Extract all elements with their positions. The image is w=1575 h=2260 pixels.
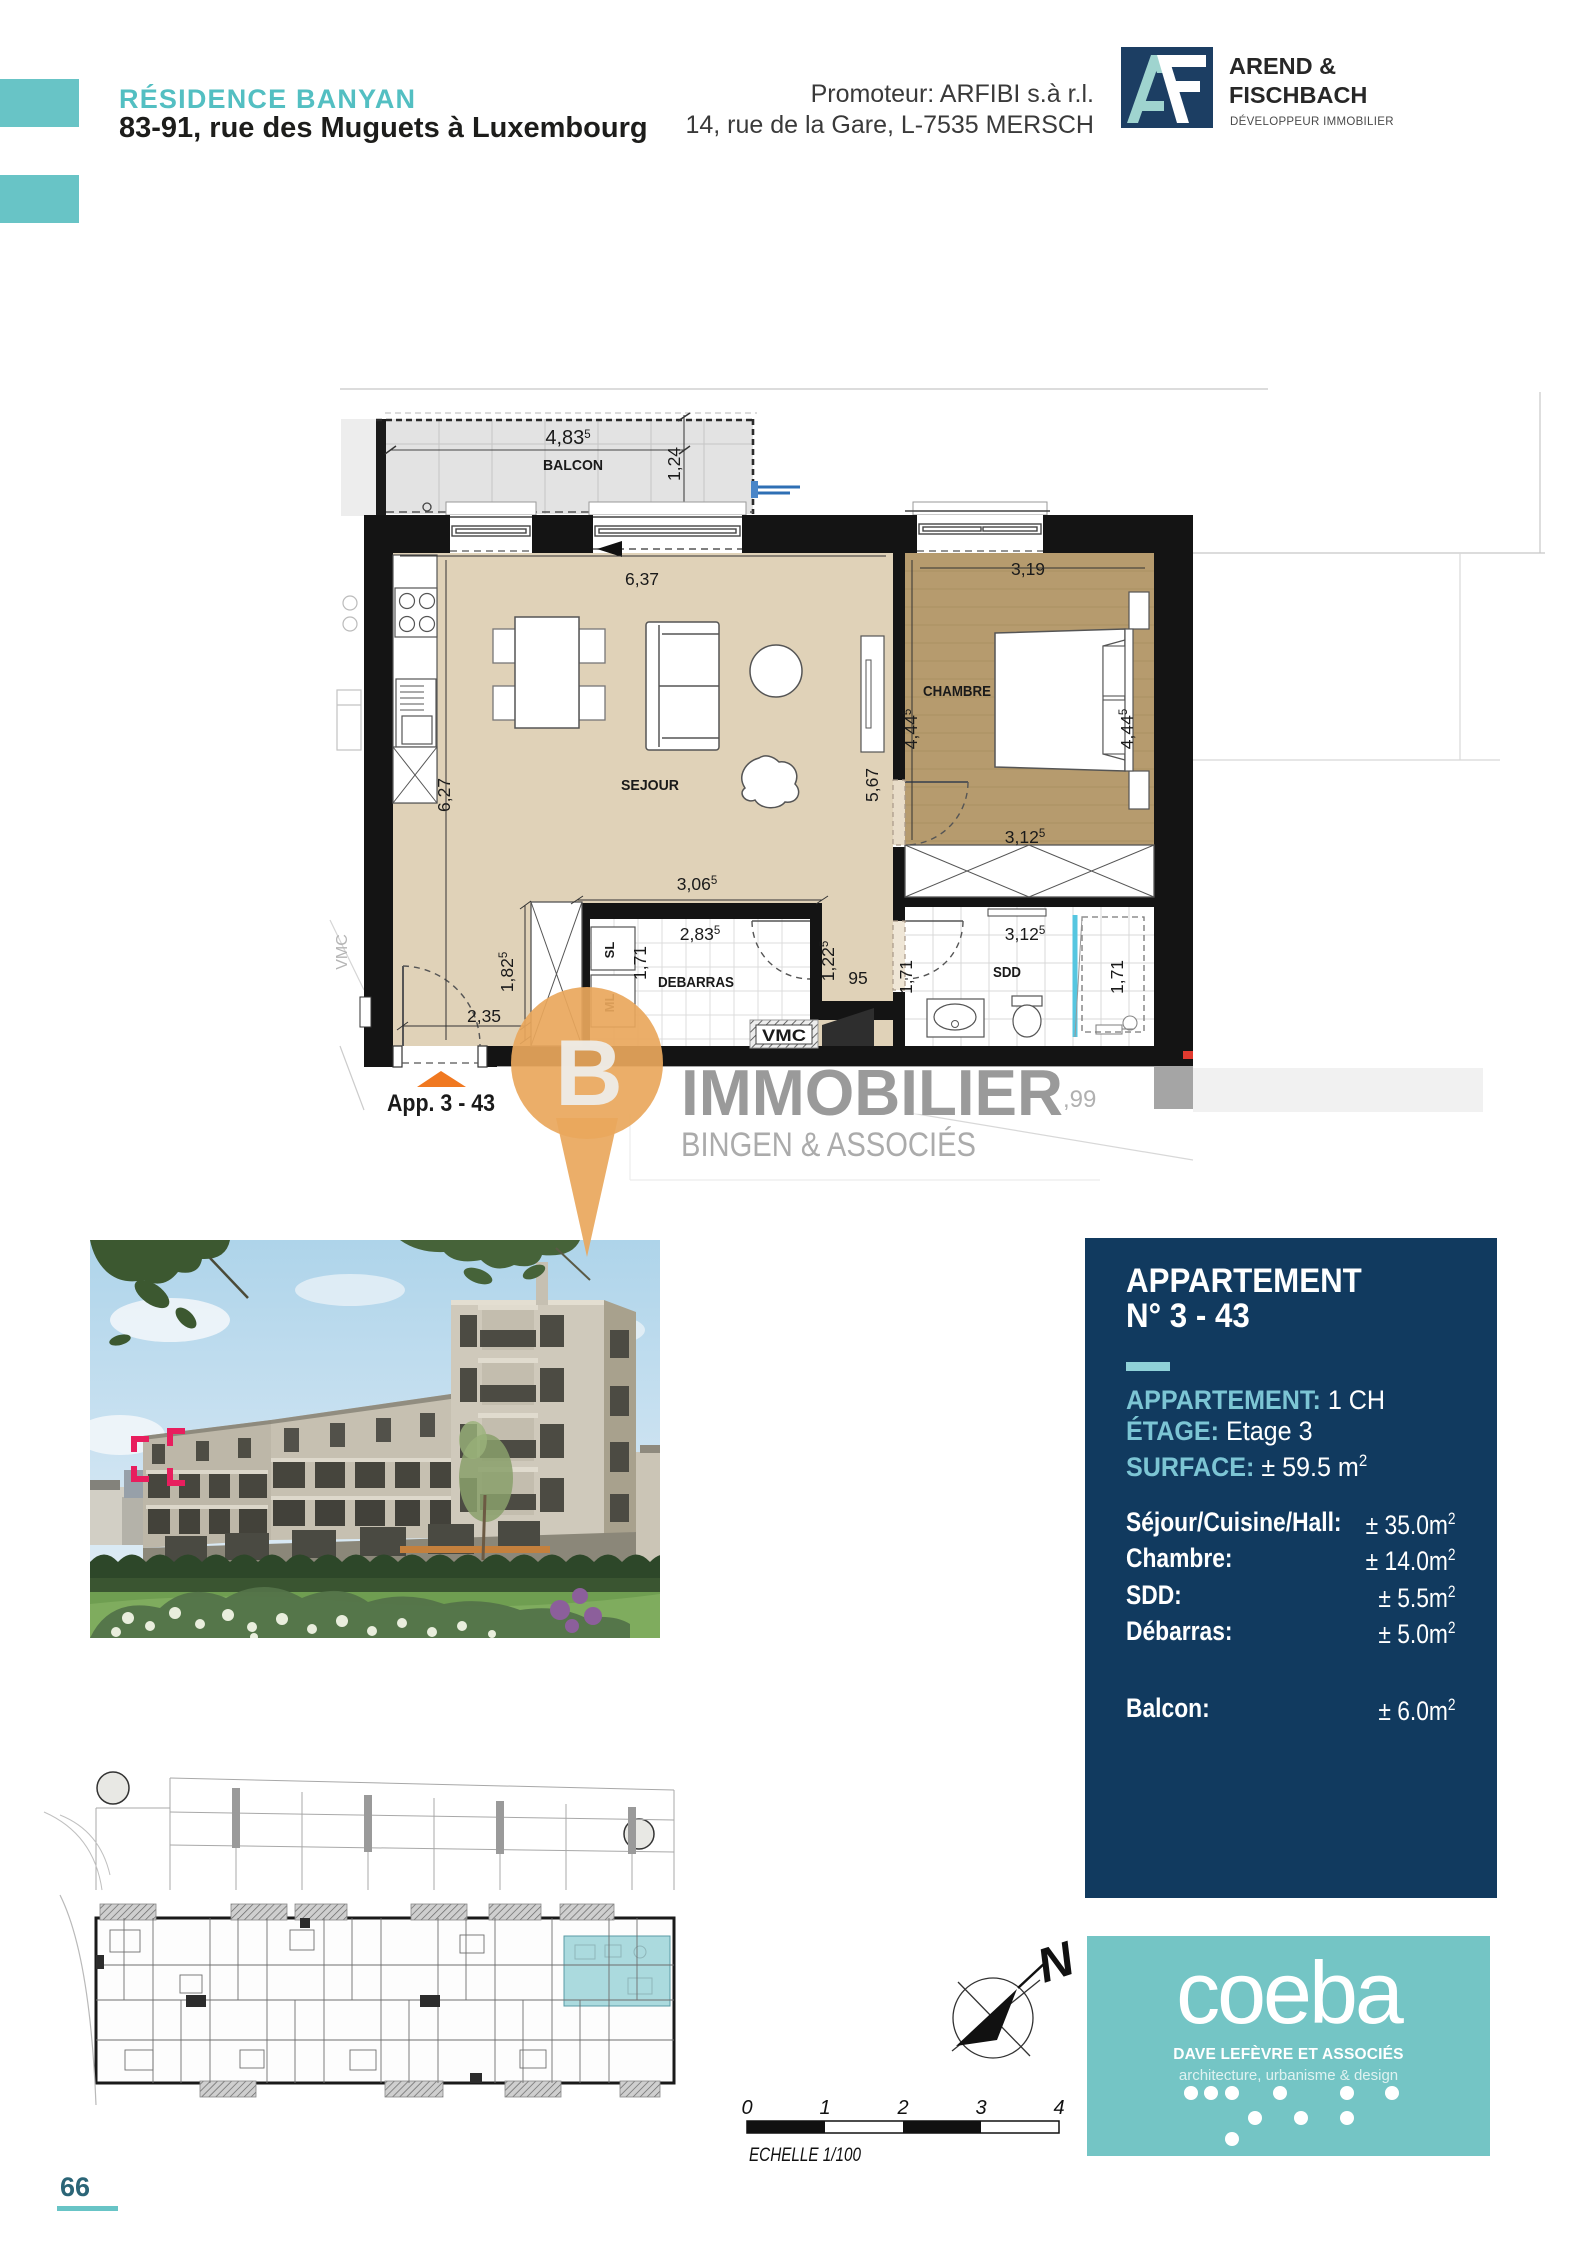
svg-text:1,24: 1,24 bbox=[664, 447, 684, 481]
svg-text:4: 4 bbox=[1053, 2097, 1064, 2119]
svg-text:SEJOUR: SEJOUR bbox=[621, 777, 679, 794]
svg-text:3,19: 3,19 bbox=[1011, 559, 1045, 579]
svg-text:95: 95 bbox=[848, 968, 867, 988]
svg-text:VMC: VMC bbox=[762, 1026, 806, 1045]
svg-text:VMC: VMC bbox=[334, 934, 351, 970]
svg-text:2: 2 bbox=[896, 2097, 908, 2119]
svg-text:BINGEN & ASSOCIÉS: BINGEN & ASSOCIÉS bbox=[681, 1126, 976, 1164]
svg-text:1,71: 1,71 bbox=[1107, 960, 1127, 994]
svg-text:1,71: 1,71 bbox=[630, 946, 650, 980]
svg-text:5,67: 5,67 bbox=[862, 768, 882, 802]
svg-text:SDD: SDD bbox=[993, 964, 1021, 981]
svg-text:BALCON: BALCON bbox=[543, 457, 603, 474]
svg-text:DEBARRAS: DEBARRAS bbox=[658, 974, 734, 991]
svg-text:ECHELLE 1/100: ECHELLE 1/100 bbox=[749, 2145, 861, 2166]
svg-text:1,71: 1,71 bbox=[896, 960, 916, 994]
svg-text:6,37: 6,37 bbox=[625, 569, 659, 589]
svg-text:N: N bbox=[1031, 1932, 1082, 1994]
svg-text:6,27: 6,27 bbox=[434, 778, 454, 812]
svg-text:SL: SL bbox=[602, 942, 617, 959]
svg-text:0: 0 bbox=[741, 2097, 752, 2119]
svg-text:IMMOBILIER: IMMOBILIER bbox=[681, 1056, 1063, 1129]
svg-text:1: 1 bbox=[819, 2097, 830, 2119]
svg-text:,99: ,99 bbox=[1063, 1086, 1096, 1113]
svg-text:App. 3 - 43: App. 3 - 43 bbox=[387, 1090, 495, 1117]
svg-text:B: B bbox=[555, 1020, 623, 1125]
svg-text:CHAMBRE: CHAMBRE bbox=[923, 683, 991, 700]
svg-text:3: 3 bbox=[975, 2097, 986, 2119]
svg-text:2,35: 2,35 bbox=[467, 1006, 501, 1026]
svg-text:4,835: 4,835 bbox=[545, 427, 590, 449]
